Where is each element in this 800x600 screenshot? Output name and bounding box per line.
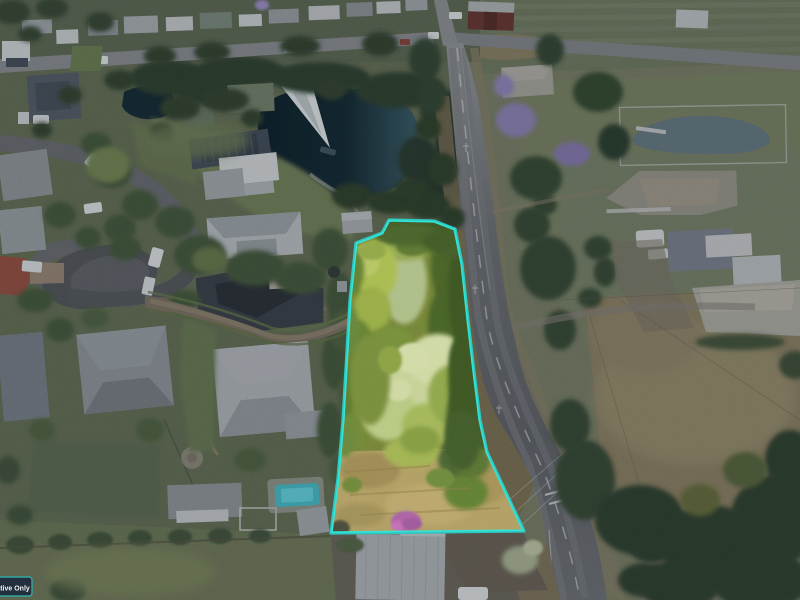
svg-text:Indicative Only: Indicative Only	[0, 586, 30, 593]
